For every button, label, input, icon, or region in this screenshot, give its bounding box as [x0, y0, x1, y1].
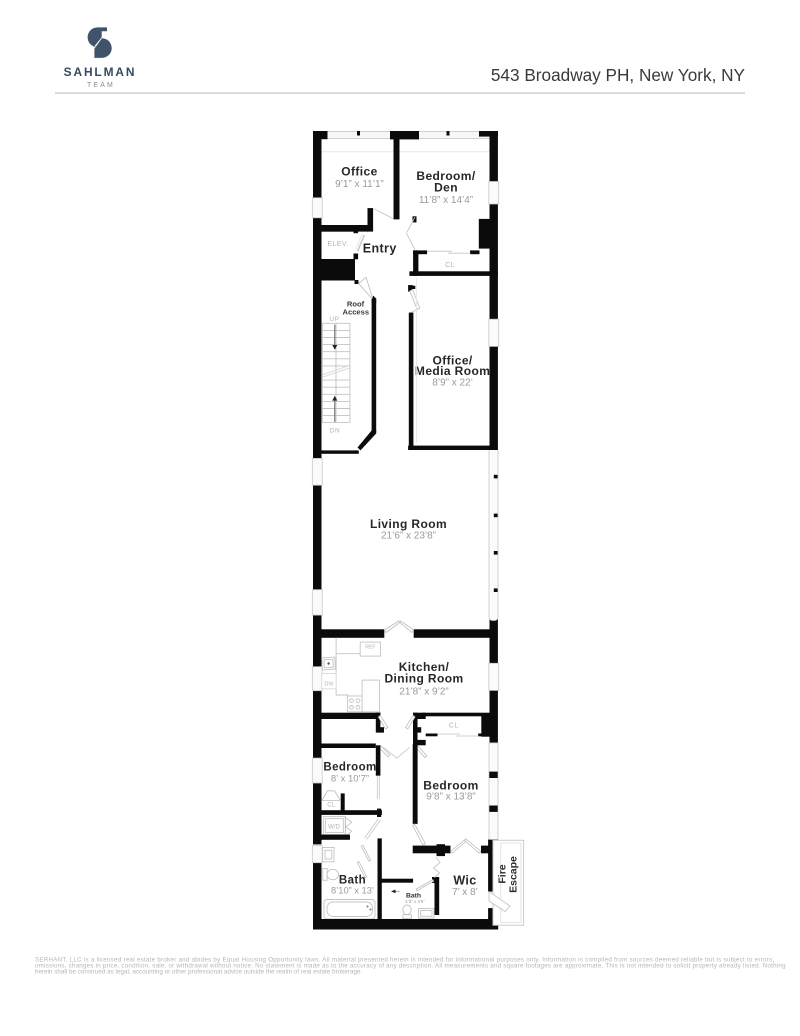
svg-text:TEAM: TEAM	[87, 82, 115, 89]
svg-text:Escape: Escape	[508, 856, 520, 893]
svg-text:CL: CL	[449, 723, 459, 730]
svg-text:9’1” x 11’1”: 9’1” x 11’1”	[335, 179, 384, 190]
svg-text:Den: Den	[434, 181, 458, 195]
svg-text:DN: DN	[330, 428, 340, 435]
svg-text:Media Room: Media Room	[415, 364, 490, 378]
svg-text:CL: CL	[327, 803, 336, 809]
svg-text:Bedroom: Bedroom	[423, 778, 478, 792]
svg-text:Access: Access	[342, 307, 369, 316]
svg-text:9’8” x 13’8”: 9’8” x 13’8”	[426, 792, 475, 803]
svg-text:8’10” x 13’: 8’10” x 13’	[331, 886, 374, 896]
svg-text:SAHLMAN: SAHLMAN	[64, 65, 137, 79]
svg-text:UP: UP	[329, 316, 339, 323]
svg-text:Bedroom: Bedroom	[323, 762, 376, 774]
svg-text:Wic: Wic	[453, 874, 476, 888]
svg-text:Entry: Entry	[363, 242, 397, 256]
svg-text:Living Room: Living Room	[370, 517, 447, 531]
svg-text:8’9” x 22’: 8’9” x 22’	[432, 378, 473, 389]
svg-text:W/D: W/D	[328, 825, 340, 831]
svg-text:herein shall be construed as l: herein shall be construed as legal, acco…	[35, 969, 362, 976]
svg-text:ELEV.: ELEV.	[327, 241, 348, 248]
svg-text:Office: Office	[341, 165, 377, 179]
svg-text:21’8” x 9’2”: 21’8” x 9’2”	[399, 686, 448, 697]
svg-text:Dining Room: Dining Room	[384, 672, 463, 686]
svg-text:REF: REF	[365, 645, 375, 651]
svg-text:8’ x 10’7”: 8’ x 10’7”	[331, 774, 369, 785]
svg-text:4’3” x 4’5”: 4’3” x 4’5”	[405, 899, 425, 904]
svg-text:543 Broadway PH, New York, NY: 543 Broadway PH, New York, NY	[491, 65, 746, 85]
svg-text:7’ x 8’: 7’ x 8’	[452, 887, 478, 898]
svg-text:21’6” x 23’8”: 21’6” x 23’8”	[381, 531, 436, 542]
svg-text:CL: CL	[445, 262, 455, 269]
svg-text:11’8” x 14’4”: 11’8” x 14’4”	[419, 195, 473, 206]
svg-text:DW: DW	[324, 682, 334, 688]
